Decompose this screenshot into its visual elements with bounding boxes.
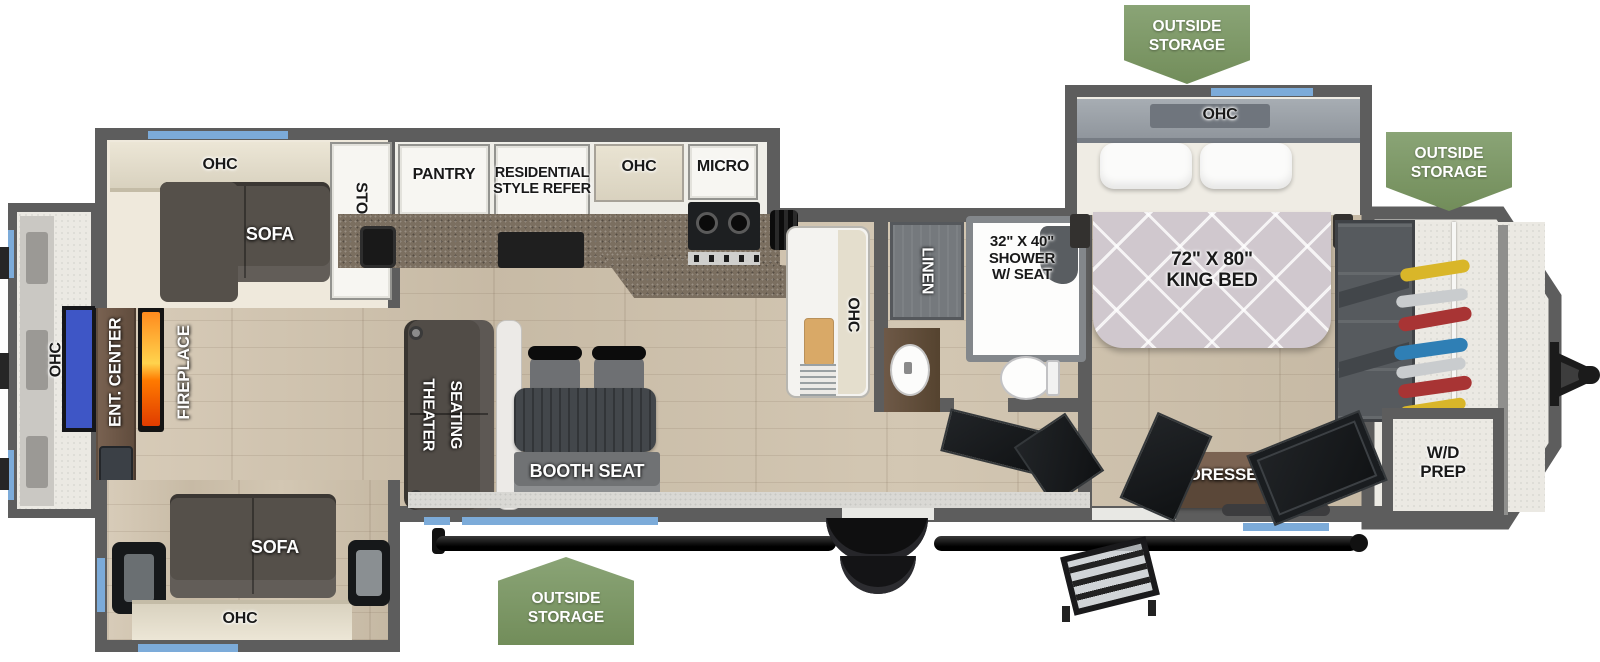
range-vent xyxy=(688,252,760,265)
king-bed-label: 72" X 80" KING BED xyxy=(1122,250,1302,292)
island-ohc-label: OHC xyxy=(832,275,872,355)
cutting-board xyxy=(804,318,834,366)
sofa-top-label: SOFA xyxy=(220,225,320,245)
rear-bumper-1 xyxy=(0,247,9,279)
burner-left xyxy=(696,212,718,234)
micro-label: MICRO xyxy=(682,158,764,176)
sofa-bottom-label: SOFA xyxy=(225,538,325,558)
kitchen-sink xyxy=(360,226,396,268)
rear-bumper-3 xyxy=(0,458,9,490)
window-bed-slide xyxy=(1211,88,1313,96)
kitchen-ohc-label: OHC xyxy=(594,158,684,176)
bottom-window-right-glass xyxy=(356,550,382,596)
fireplace-label: FIREPLACE xyxy=(156,305,212,440)
wd-prep-label: W/D PREP xyxy=(1394,444,1492,481)
window-slide-top xyxy=(148,131,288,139)
kitchen-top-wall xyxy=(393,128,780,142)
rv-floorplan: OHC ENT. CENTER FIREPLACE OHC STORAGE SO… xyxy=(0,0,1600,662)
window-bottom-2 xyxy=(462,517,658,525)
nightstand-left xyxy=(1070,214,1090,248)
bottom-window-left-glass xyxy=(124,554,154,602)
entry-landing xyxy=(408,492,1090,508)
bath-faucet xyxy=(904,362,912,374)
toilet-tank xyxy=(1046,360,1060,396)
ent-center-label: ENT. CENTER xyxy=(88,305,144,440)
toilet-bowl xyxy=(1000,356,1052,400)
bed-ohc-label: OHC xyxy=(1170,106,1270,124)
booth-table xyxy=(514,388,656,452)
bedroom-steps-leg-left xyxy=(1062,606,1070,622)
booth-chair-back-right xyxy=(592,346,646,360)
rear-cabinet-cubby-3 xyxy=(26,436,48,488)
bath-bottom-wall-right xyxy=(1008,398,1092,412)
slide-ohc-label: OHC xyxy=(170,156,270,174)
window-slide-bottom-edge xyxy=(138,644,238,652)
awning-rod-endcap xyxy=(1350,534,1368,552)
booth-chair-back-left xyxy=(528,346,582,360)
burner-right xyxy=(728,212,750,234)
linen-label: LINEN xyxy=(890,224,964,318)
refer-label: RESIDENTIAL STYLE REFER xyxy=(490,166,594,198)
bedroom-steps-leg-right xyxy=(1148,600,1156,616)
booth-seat-label: BOOTH SEAT xyxy=(510,462,664,482)
window-bottom-3 xyxy=(1243,523,1329,531)
theater-label-line2: SEATING xyxy=(434,345,476,485)
rear-bumper-2 xyxy=(0,353,9,389)
pantry-label: PANTRY xyxy=(398,166,490,184)
window-slide-bottom-left xyxy=(97,558,105,612)
window-bottom-1 xyxy=(424,517,450,525)
theater-cupholder-top xyxy=(409,326,423,340)
awning-rod-left xyxy=(436,536,836,551)
pillow-left xyxy=(1100,143,1192,189)
rear-cabinet-cubby-1 xyxy=(26,232,48,284)
hitch-coupler xyxy=(1578,366,1600,384)
pillow-right xyxy=(1200,143,1292,189)
dishwasher xyxy=(498,232,584,268)
shower-label: 32" X 40" SHOWER W/ SEAT xyxy=(968,234,1076,284)
bottom-ohc-label: OHC xyxy=(190,610,290,628)
dish-rack xyxy=(800,364,836,396)
